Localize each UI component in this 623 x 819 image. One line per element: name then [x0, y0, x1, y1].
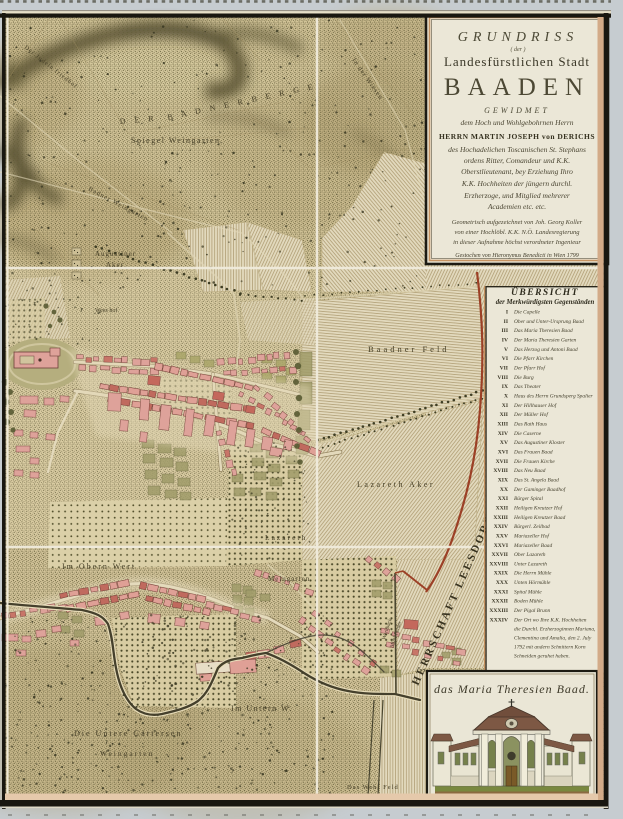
- svg-text:Wees hof: Wees hof: [95, 307, 117, 314]
- svg-text:XXV: XXV: [496, 533, 508, 539]
- svg-text:VIII: VIII: [497, 375, 508, 381]
- svg-text:XX: XX: [500, 487, 508, 493]
- svg-text:Der Maria Theresien Garten: Der Maria Theresien Garten: [513, 338, 577, 344]
- svg-text:Die Capelle: Die Capelle: [513, 310, 541, 316]
- svg-text:die Durchl. Erzherzoginnen Mar: die Durchl. Erzherzoginnen Mariana,: [514, 626, 596, 632]
- svg-text:K.K. Hochheiten der jüngern du: K.K. Hochheiten der jüngern durchl.: [461, 179, 572, 188]
- svg-text:des Hochadelichen Toscanischen: des Hochadelichen Toscanischen St. Steph…: [448, 145, 586, 154]
- svg-text:1792 mit andern Schnittern Kor: 1792 mit andern Schnittern Korn: [514, 644, 586, 650]
- svg-text:VI: VI: [502, 356, 508, 362]
- svg-text:XXXIII: XXXIII: [489, 608, 508, 614]
- svg-text:Mariazeller Hof: Mariazeller Hof: [513, 532, 550, 539]
- svg-text:XXX: XXX: [496, 580, 508, 586]
- svg-text:Ober und Unter-Ursprung Baad: Ober und Unter-Ursprung Baad: [514, 319, 584, 325]
- svg-text:Academien etc. etc.: Academien etc. etc.: [487, 202, 546, 211]
- svg-text:Gestochen von Hieronymus Bened: Gestochen von Hieronymus Benedicti in Wi…: [455, 253, 578, 259]
- svg-text:von einer Hochlöbl. K.K. N.Ö.: von einer Hochlöbl. K.K. N.Ö. Landesregi…: [454, 228, 580, 236]
- svg-text:Das Augustiner Kloster: Das Augustiner Kloster: [513, 440, 566, 446]
- svg-text:Das Frauen Baad: Das Frauen Baad: [513, 449, 553, 455]
- svg-text:X: X: [504, 394, 508, 400]
- svg-text:XVI: XVI: [498, 449, 508, 455]
- svg-text:Baadner Feld: Baadner Feld: [368, 344, 450, 354]
- svg-text:Der Müller Hof: Der Müller Hof: [513, 411, 549, 418]
- svg-text:in dieser Aufnahme höchst vero: in dieser Aufnahme höchst verordneter In…: [453, 239, 581, 246]
- svg-text:HERRN MARTIN JOSEPH von DERICH: HERRN MARTIN JOSEPH von DERICHS: [439, 132, 595, 141]
- svg-text:Die Caserne: Die Caserne: [513, 431, 542, 437]
- svg-text:Bürger Spital: Bürger Spital: [514, 496, 544, 502]
- svg-text:Die Pfarr Kirchen: Die Pfarr Kirchen: [513, 355, 554, 362]
- svg-text:XXIII: XXIII: [493, 515, 508, 521]
- svg-text:VII: VII: [500, 366, 508, 372]
- svg-text:Clementina und Amalia, den 2.: Clementina und Amalia, den 2. July: [514, 635, 592, 641]
- svg-text:III: III: [501, 328, 508, 334]
- svg-text:Die Burg: Die Burg: [513, 375, 534, 381]
- svg-text:Heiligen Kreutzer Hof: Heiligen Kreutzer Hof: [513, 504, 564, 511]
- svg-text:XII: XII: [500, 412, 508, 418]
- svg-text:Unten Hörmühle: Unten Hörmühle: [514, 580, 551, 586]
- svg-text:XXI: XXI: [498, 496, 508, 502]
- svg-text:Bürgerl. Zeilbad: Bürgerl. Zeilbad: [514, 524, 550, 530]
- svg-text:Unter Lazareth: Unter Lazareth: [514, 561, 547, 567]
- svg-text:XIX: XIX: [498, 477, 508, 483]
- svg-text:XXVI: XXVI: [494, 543, 508, 549]
- svg-text:ordens Ritter, Comandeur und K: ordens Ritter, Comandeur und K.K.: [464, 156, 570, 165]
- svg-text:Der Hillhauser Hof: Der Hillhauser Hof: [513, 402, 558, 409]
- svg-text:GEWIDMET: GEWIDMET: [484, 106, 550, 115]
- svg-text:Geometrisch aufgezeichnet von: Geometrisch aufgezeichnet von Joh. Georg…: [452, 219, 583, 226]
- svg-text:XXIV: XXIV: [494, 524, 508, 530]
- svg-text:IV: IV: [502, 338, 508, 344]
- svg-text:II: II: [504, 319, 508, 325]
- svg-text:Boden Mühle: Boden Mühle: [514, 599, 543, 605]
- svg-text:XXXIV: XXXIV: [490, 617, 508, 623]
- svg-text:XXII: XXII: [496, 505, 508, 511]
- svg-text:XXIX: XXIX: [494, 571, 508, 577]
- svg-text:Das Rath Haus: Das Rath Haus: [513, 422, 547, 428]
- svg-text:Im Untern W.: Im Untern W.: [231, 704, 293, 713]
- svg-text:Die Herrn Mühle: Die Herrn Mühle: [513, 571, 552, 577]
- svg-text:Das Wehr Feld: Das Wehr Feld: [347, 784, 399, 791]
- svg-text:das Maria Theresien Baad.: das Maria Theresien Baad.: [434, 682, 590, 696]
- svg-text:Spital Mühle: Spital Mühle: [514, 589, 542, 595]
- svg-text:Heiligen Kreutzer Baad: Heiligen Kreutzer Baad: [513, 515, 566, 521]
- svg-text:Landesfürstlichen Stadt: Landesfürstlichen Stadt: [444, 54, 590, 69]
- svg-text:Schneiden geruhet haben.: Schneiden geruhet haben.: [514, 653, 570, 659]
- svg-text:XI: XI: [502, 403, 508, 409]
- svg-text:Spiegel Weingarten: Spiegel Weingarten: [131, 136, 221, 145]
- svg-text:Oberstlieutenant, bey Erziehun: Oberstlieutenant, bey Erziehung Ihro: [461, 167, 573, 176]
- svg-text:Im Obern Wert: Im Obern Wert: [62, 562, 136, 571]
- svg-text:V: V: [504, 347, 508, 353]
- svg-text:Das Theater: Das Theater: [513, 384, 542, 390]
- svg-text:Mariazeller Baad: Mariazeller Baad: [513, 543, 552, 549]
- svg-text:XXVII: XXVII: [492, 552, 508, 558]
- svg-text:Das St. Angela Baad: Das St. Angela Baad: [513, 477, 559, 483]
- svg-text:Erzherzoge, und Mitglied mehre: Erzherzoge, und Mitglied mehrerer: [463, 191, 570, 200]
- svg-text:Weingarten: Weingarten: [100, 749, 154, 758]
- svg-text:Aker: Aker: [106, 261, 124, 269]
- svg-text:XV: XV: [500, 440, 508, 446]
- svg-text:XIV: XIV: [498, 431, 508, 437]
- svg-text:Ober Lazareth: Ober Lazareth: [514, 552, 546, 558]
- svg-text:Der Ort wo Ihre K.K. Hochheite: Der Ort wo Ihre K.K. Hochheiten: [513, 617, 587, 623]
- svg-text:Haus des Herrn Grundsperg Spal: Haus des Herrn Grundsperg Spalier: [513, 394, 593, 400]
- svg-text:dem Hoch und Wohlgebohrnen Her: dem Hoch und Wohlgebohrnen Herrn: [460, 118, 573, 127]
- svg-text:BAADEN: BAADEN: [444, 74, 590, 101]
- svg-text:XIII: XIII: [497, 422, 508, 428]
- svg-text:Der Gaminger Baadhof: Der Gaminger Baadhof: [513, 486, 567, 493]
- svg-text:Die Frauen Kirche: Die Frauen Kirche: [513, 459, 555, 465]
- svg-text:XVIII: XVIII: [493, 468, 508, 474]
- svg-text:GRUNDRISS: GRUNDRISS: [458, 30, 578, 45]
- svg-text:Lazareth: Lazareth: [265, 533, 307, 542]
- svg-text:Der Pigal Brunn: Der Pigal Brunn: [513, 608, 551, 614]
- svg-text:Das Maria Theresien Baad: Das Maria Theresien Baad: [513, 328, 573, 334]
- svg-text:XXXII: XXXII: [492, 599, 508, 605]
- svg-text:Das Herzog und Antoni Baad: Das Herzog und Antoni Baad: [513, 347, 578, 353]
- svg-text:Das Neu Baad: Das Neu Baad: [513, 468, 546, 474]
- svg-text:I: I: [506, 310, 508, 316]
- svg-text:Der Pfarr Hof: Der Pfarr Hof: [513, 365, 546, 372]
- svg-text:der Merkwürdigsten Gegenstände: der Merkwürdigsten Gegenständen: [496, 299, 595, 306]
- svg-text:Die Untere Gärtersen: Die Untere Gärtersen: [74, 729, 182, 738]
- svg-text:( der ): ( der ): [511, 46, 526, 53]
- svg-text:Melugarten: Melugarten: [268, 575, 310, 583]
- svg-text:IX: IX: [502, 384, 508, 390]
- svg-text:Augustiner: Augustiner: [95, 250, 136, 258]
- svg-text:XXXI: XXXI: [494, 589, 508, 595]
- svg-text:XVII: XVII: [496, 459, 508, 465]
- svg-text:Lazareth Aker: Lazareth Aker: [357, 480, 435, 489]
- svg-text:XXVIII: XXVIII: [489, 561, 508, 567]
